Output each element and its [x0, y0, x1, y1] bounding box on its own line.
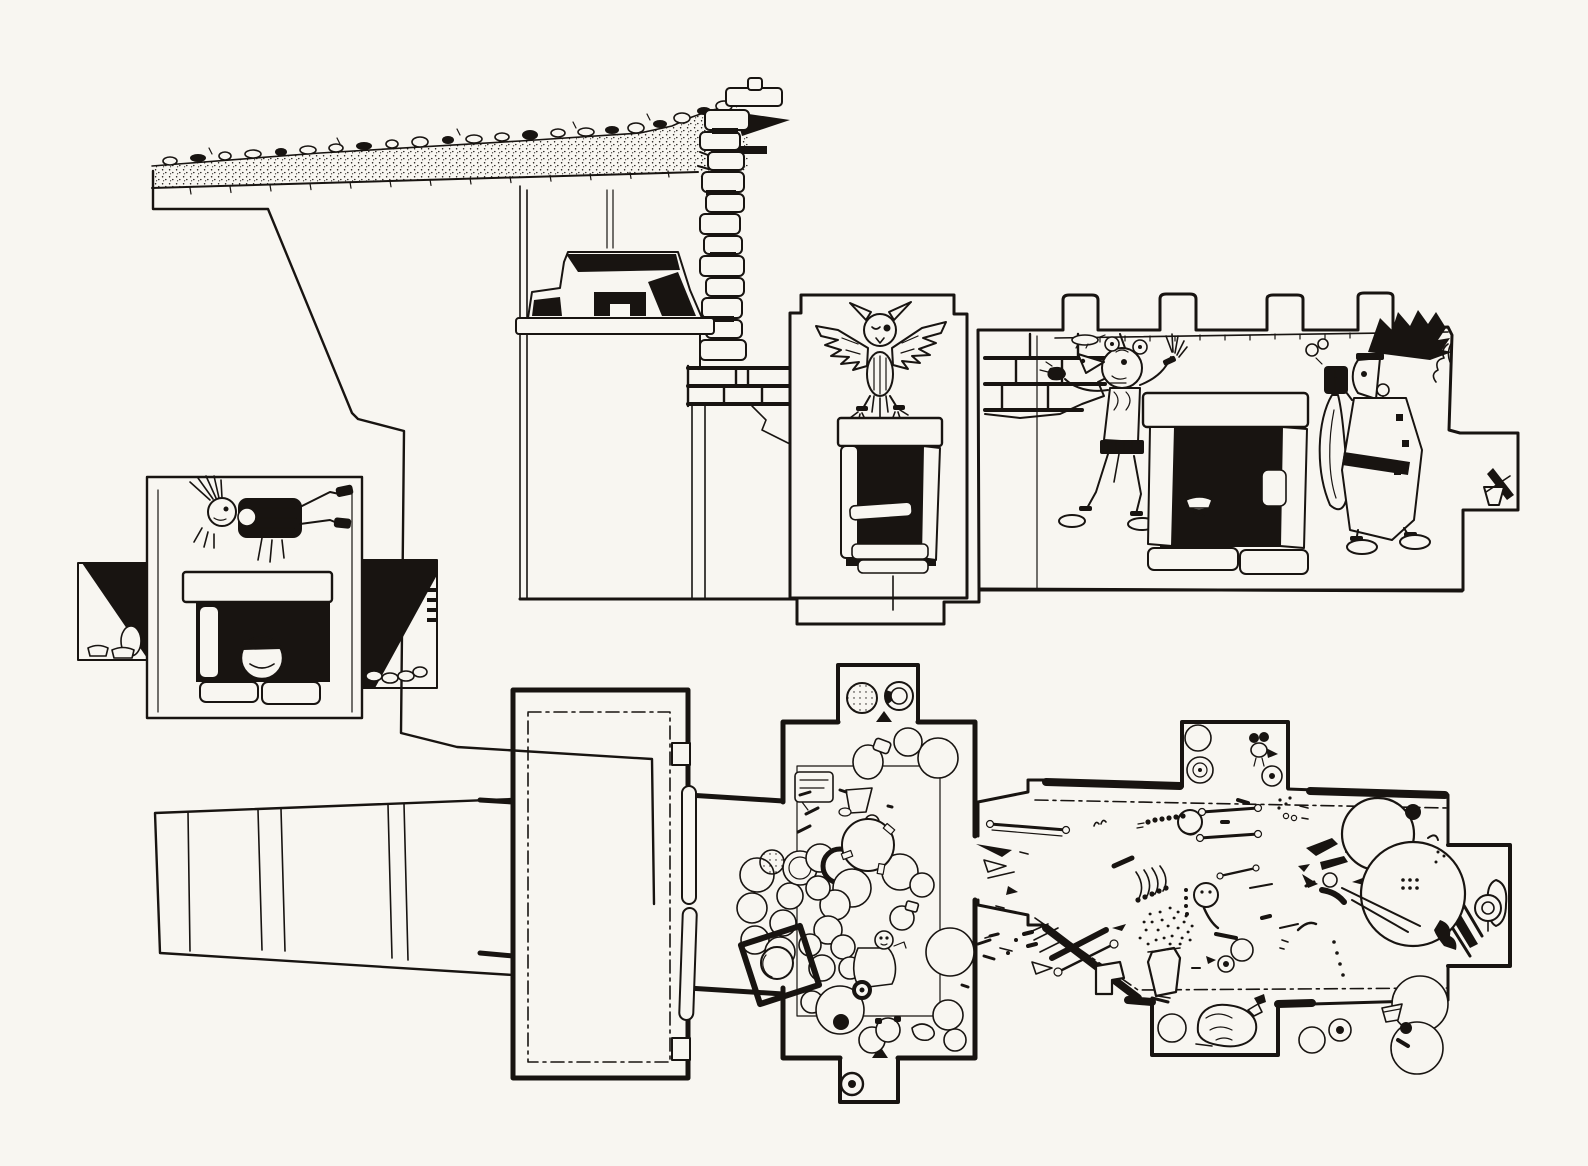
- north-niche-with-figurine: [1182, 722, 1288, 788]
- offering-chamber: [737, 665, 998, 1102]
- stepped-entrance-passage: [155, 799, 513, 975]
- crenellated-wall: [978, 293, 1518, 590]
- large-storage-vessels: [1298, 798, 1465, 950]
- door-slabs: [679, 786, 697, 1020]
- elevation-base-line: [520, 589, 1462, 624]
- stepped-fret-frieze: [516, 186, 714, 598]
- southeast-vessels: [1299, 976, 1448, 1074]
- earth-mound-section: [152, 106, 790, 194]
- owl-mural-panel: [790, 295, 967, 610]
- facade-doorway: [183, 572, 332, 704]
- main-burial-chamber: [976, 722, 1510, 1074]
- scanned-drawing-page: [0, 0, 1588, 1166]
- facade-elevation: [78, 476, 437, 718]
- floor-plan: [155, 665, 1510, 1102]
- tomb-drawing: [0, 0, 1588, 1166]
- seed-spray-dots: [1140, 908, 1192, 944]
- left-section-cut: [78, 563, 147, 660]
- south-niche-with-conch-shell: [1152, 994, 1278, 1055]
- brick-courses: [688, 366, 790, 598]
- vessel-cluster: [737, 728, 998, 1053]
- right-section-cut: [362, 560, 437, 688]
- bird-figurine: [1249, 732, 1278, 766]
- wall-niche-with-bowl: [1143, 393, 1308, 574]
- dashdot-floor-line: [528, 712, 670, 1062]
